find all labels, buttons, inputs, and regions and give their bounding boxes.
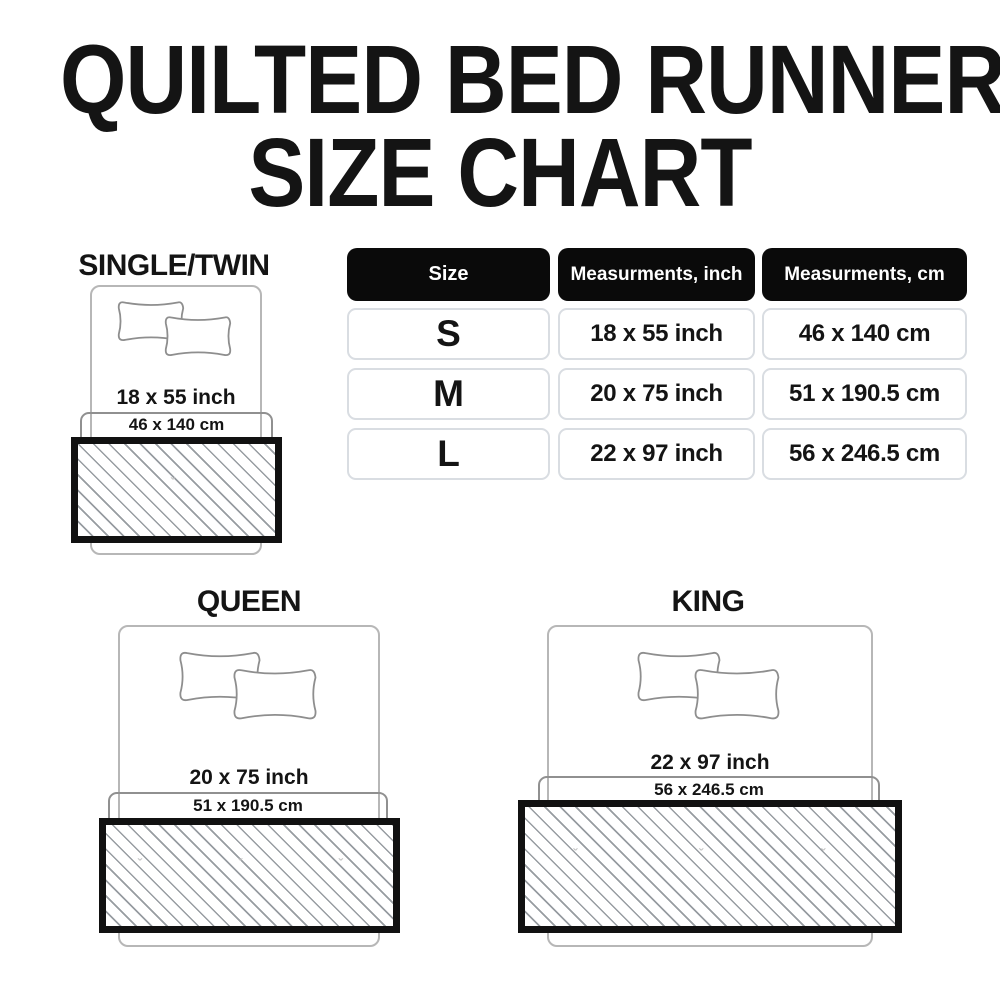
table-cell-size-s: S bbox=[347, 308, 550, 360]
size-label-inch: 20 x 75 inch bbox=[118, 766, 380, 790]
table-cell-cm-m: 51 x 190.5 cm bbox=[762, 368, 967, 420]
page-title-line-1: QUILTED BED RUNNER bbox=[60, 31, 940, 128]
size-chart-infographic: QUILTED BED RUNNER SIZE CHART SINGLE/TWI… bbox=[0, 0, 1000, 1000]
table-header-cm: Measurments, cm bbox=[762, 248, 967, 301]
pillows-icon bbox=[175, 643, 325, 729]
stitch-mark: ˇ bbox=[338, 857, 342, 870]
diagram-title-queen: QUEEN bbox=[149, 585, 349, 619]
page-title-line-2: SIZE CHART bbox=[60, 124, 940, 221]
bed-runner-hatch-swatch: ˇ ˇ ˇ bbox=[518, 800, 902, 933]
table-cell-inch-l: 22 x 97 inch bbox=[558, 428, 755, 480]
table-cell-size-l: L bbox=[347, 428, 550, 480]
size-label-inch: 18 x 55 inch bbox=[76, 386, 276, 410]
bed-runner-hatch-swatch: ˇ bbox=[71, 437, 282, 543]
size-label-cm: 56 x 246.5 cm bbox=[538, 780, 880, 800]
pillow-icon bbox=[166, 317, 231, 355]
bed-runner-hatch-swatch: ˇ ˇ ˇ bbox=[99, 818, 400, 933]
diagram-title-single-twin: SINGLE/TWIN bbox=[63, 249, 285, 283]
pillow-icon bbox=[234, 670, 315, 718]
pillow-icon bbox=[696, 670, 779, 718]
size-label-cm: 51 x 190.5 cm bbox=[108, 796, 388, 816]
diagram-title-king: KING bbox=[608, 585, 808, 619]
table-cell-inch-s: 18 x 55 inch bbox=[558, 308, 755, 360]
size-label-cm: 46 x 140 cm bbox=[80, 415, 273, 435]
stitch-mark: ˇ bbox=[821, 847, 825, 860]
table-header-size: Size bbox=[347, 248, 550, 301]
stitch-mark: ˇ bbox=[171, 476, 175, 489]
table-cell-cm-s: 46 x 140 cm bbox=[762, 308, 967, 360]
stitch-mark: ˇ bbox=[138, 857, 142, 870]
table-cell-size-m: M bbox=[347, 368, 550, 420]
stitch-mark: ˇ bbox=[699, 847, 703, 860]
stitch-mark: ˇ bbox=[238, 857, 242, 870]
table-header-inch: Measurments, inch bbox=[558, 248, 755, 301]
pillows-icon bbox=[633, 643, 788, 729]
table-cell-cm-l: 56 x 246.5 cm bbox=[762, 428, 967, 480]
stitch-mark: ˇ bbox=[573, 847, 577, 860]
pillows-icon bbox=[110, 292, 240, 370]
table-cell-inch-m: 20 x 75 inch bbox=[558, 368, 755, 420]
size-label-inch: 22 x 97 inch bbox=[547, 751, 873, 775]
